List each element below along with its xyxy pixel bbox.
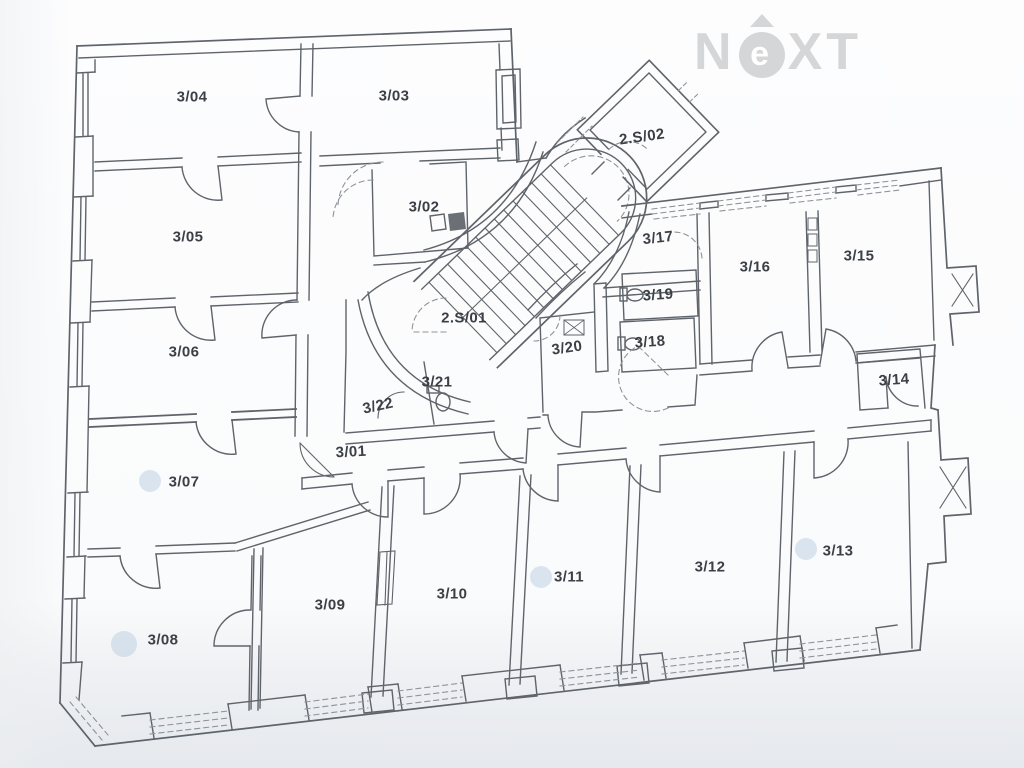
floor-plan-svg bbox=[0, 0, 1024, 768]
room-label-3/19: 3/19 bbox=[642, 285, 674, 304]
bottom-room-partitions bbox=[251, 451, 795, 709]
room-label-3/07: 3/07 bbox=[169, 474, 200, 491]
stamp-dot-marker bbox=[111, 631, 137, 657]
hall-2s01 bbox=[333, 162, 470, 432]
room-label-2.S/01: 2.S/01 bbox=[441, 310, 487, 327]
room-label-3/18: 3/18 bbox=[634, 332, 666, 351]
left-wing-partitions bbox=[89, 44, 313, 454]
right-wing-north-wall bbox=[622, 168, 941, 219]
room-label-3/17: 3/17 bbox=[642, 228, 674, 248]
room-label-3/05: 3/05 bbox=[173, 229, 204, 246]
exterior-north-wall bbox=[77, 29, 585, 162]
room-label-3/15: 3/15 bbox=[844, 248, 875, 265]
hall-302-walls bbox=[320, 142, 543, 300]
room-label-3/03: 3/03 bbox=[379, 88, 410, 105]
stamp-dot-marker bbox=[795, 538, 817, 560]
room-label-3/08: 3/08 bbox=[148, 632, 179, 649]
stamp-dot-marker bbox=[530, 566, 552, 588]
room-label-3/09: 3/09 bbox=[315, 597, 346, 614]
room-label-3/13: 3/13 bbox=[823, 543, 854, 560]
room-label-3/06: 3/06 bbox=[169, 344, 200, 361]
stamp-dot-marker bbox=[139, 470, 161, 492]
room-label-3/10: 3/10 bbox=[437, 586, 468, 603]
exterior-west-wall bbox=[60, 46, 95, 703]
floor-plan-page: N e XT bbox=[0, 0, 1024, 768]
room-label-3/14: 3/14 bbox=[878, 370, 910, 389]
room-label-3/04: 3/04 bbox=[177, 89, 208, 106]
room-label-3/01: 3/01 bbox=[335, 443, 367, 462]
exterior-east-wall bbox=[908, 168, 979, 650]
room-label-3/11: 3/11 bbox=[554, 569, 584, 586]
room-label-3/02: 3/02 bbox=[409, 199, 440, 216]
room-label-3/12: 3/12 bbox=[695, 559, 726, 576]
corridor-301 bbox=[300, 375, 931, 517]
room-label-3/16: 3/16 bbox=[740, 259, 771, 276]
2s02-neck bbox=[592, 162, 630, 200]
room-label-3/21: 3/21 bbox=[422, 374, 453, 391]
exterior-south-wall bbox=[60, 625, 920, 746]
